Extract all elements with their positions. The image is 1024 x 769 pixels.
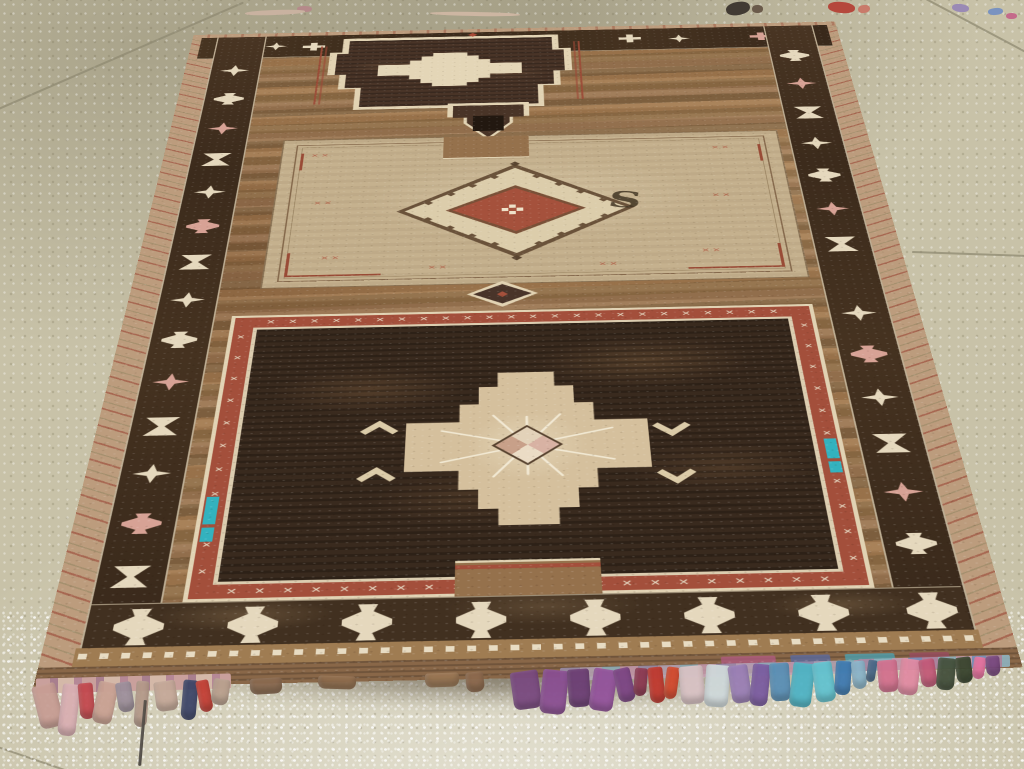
- border-motif-goblet: [807, 168, 842, 182]
- cross-glyph: ✕: [395, 583, 407, 593]
- cross-glyph: ✕: [266, 319, 276, 326]
- border-motif-goblet: [893, 533, 939, 555]
- border-motif-hourglass: [107, 566, 153, 589]
- fringe-tassel: [954, 656, 973, 684]
- border-motif-star: [130, 464, 173, 484]
- cross-glyph: ✕: [572, 312, 582, 319]
- cross-glyph: ✕: [804, 343, 814, 350]
- cross-glyph: ✕: [232, 355, 242, 362]
- border-motif-star: [815, 201, 851, 215]
- cross-glyph: ✕: [837, 502, 849, 510]
- cross-glyph: ✕: [214, 466, 225, 474]
- cross-glyph: ✕: [637, 311, 647, 318]
- border-motif-hourglass: [199, 153, 233, 166]
- fringe-tassel: [153, 680, 179, 713]
- cross-glyph: ✕: [799, 322, 809, 329]
- x-cluster: ✕✕: [320, 255, 342, 261]
- fringe-tassel: [425, 672, 459, 687]
- cross-glyph: ✕: [441, 315, 451, 322]
- border-motif-hourglass: [792, 106, 826, 118]
- border-motif-cross: [618, 34, 641, 42]
- x-cluster: ✕✕: [701, 247, 723, 253]
- cross-glyph: ✕: [832, 477, 843, 485]
- x-cluster: ✕✕: [711, 192, 732, 198]
- fringe-tassel: [318, 675, 356, 689]
- bottom-panel: ✕✕✕✕✕✕✕✕✕✕✕✕✕✕✕✕✕✕✕✕✕✕✕✕ ✕✕✕✕✕✕✕✕✕✕✕✕✕✕✕…: [182, 304, 874, 602]
- cross-glyph: ✕: [812, 385, 823, 392]
- border-motif-goblet: [160, 331, 199, 348]
- cross-glyph: ✕: [621, 579, 633, 588]
- pendant-diamond: [467, 280, 539, 307]
- cross-glyph: ✕: [734, 576, 746, 585]
- rug-rotation-wrapper: R: [0, 0, 1024, 769]
- rug-perspective-wrapper: R: [33, 22, 1023, 689]
- border-motif-star: [206, 122, 239, 135]
- border-motif-star: [799, 136, 833, 149]
- x-cluster: ✕✕: [311, 153, 331, 158]
- border-motif-goblet: [682, 597, 737, 634]
- border-motif-star: [264, 42, 288, 50]
- border-motif-star: [667, 34, 690, 42]
- fringe-tassel: [539, 669, 569, 715]
- center-pixel: [509, 211, 516, 214]
- border-motif-star: [785, 77, 818, 89]
- border-motif-goblet: [456, 601, 507, 638]
- border-motif-star: [219, 65, 251, 77]
- border-motif-star: [881, 481, 926, 502]
- cross-glyph: ✕: [678, 577, 690, 586]
- cross-glyph: ✕: [236, 334, 246, 341]
- border-motif-hourglass: [823, 236, 860, 251]
- cross-glyph: ✕: [288, 318, 298, 325]
- latchhook-diamond-medallion: [393, 162, 640, 260]
- cross-glyph: ✕: [353, 317, 363, 324]
- cross-glyph: ✕: [808, 364, 819, 371]
- border-motif-star: [168, 292, 206, 308]
- cross-glyph: ✕: [659, 310, 669, 317]
- fringe-tassel: [877, 659, 900, 693]
- floor-debris-item: [752, 5, 763, 13]
- cross-glyph: ✕: [217, 443, 228, 451]
- border-motif-goblet: [225, 606, 280, 643]
- center-pixel: [502, 208, 509, 211]
- cross-glyph: ✕: [282, 586, 294, 596]
- border-motif-goblet: [779, 50, 811, 61]
- cross-glyph: ✕: [706, 577, 718, 586]
- cross-glyph: ✕: [201, 541, 212, 549]
- cross-glyph: ✕: [594, 312, 604, 319]
- border-motif-goblet: [119, 513, 163, 534]
- border-motif-star: [150, 373, 190, 391]
- fringe-tassel: [465, 671, 485, 693]
- cross-glyph: ✕: [616, 311, 626, 318]
- fringe-tassel: [567, 668, 592, 707]
- fringe-tassel: [678, 665, 705, 705]
- x-cluster: ✕✕: [711, 145, 732, 150]
- cross-glyph: ✕: [817, 407, 828, 414]
- cross-glyph: ✕: [419, 315, 429, 322]
- border-motif-goblet: [213, 93, 245, 105]
- cross-glyph: ✕: [842, 528, 854, 536]
- x-cluster: ✕✕: [598, 261, 620, 267]
- border-motif-star: [192, 185, 227, 199]
- top-keyhole-medallion: [323, 34, 575, 110]
- cross-glyph: ✕: [848, 554, 860, 563]
- cross-glyph: ✕: [725, 309, 736, 316]
- fringe-tassel: [509, 669, 542, 711]
- cross-glyph: ✕: [746, 309, 757, 316]
- cross-glyph: ✕: [528, 313, 538, 320]
- woven-s-glyph: S: [606, 188, 644, 212]
- x-cluster: ✕✕: [427, 264, 449, 270]
- cross-glyph: ✕: [367, 584, 379, 594]
- cross-glyph: ✕: [253, 586, 265, 596]
- middle-panel: S ✕✕✕✕✕✕✕✕✕✕✕✕✕✕✕✕: [260, 130, 809, 289]
- cross-glyph: ✕: [550, 313, 560, 320]
- cross-glyph: ✕: [339, 584, 351, 594]
- cross-glyph: ✕: [221, 420, 232, 427]
- teal-accent: [199, 527, 214, 541]
- teal-accent: [828, 461, 843, 472]
- cross-glyph: ✕: [397, 316, 407, 323]
- bottom-panel-notch: [455, 558, 603, 597]
- cross-glyph: ✕: [331, 317, 341, 324]
- border-motif-goblet: [849, 345, 890, 362]
- border-motif-goblet: [110, 608, 167, 645]
- photo-scene: R: [0, 0, 1024, 769]
- cross-glyph: ✕: [463, 315, 473, 322]
- center-pixel: [517, 208, 524, 211]
- fringe-tassel: [851, 660, 868, 689]
- x-cluster: ✕✕: [313, 201, 334, 207]
- fringe-tassel: [834, 660, 852, 695]
- cross-glyph: ✕: [790, 575, 803, 584]
- border-motif-goblet: [903, 592, 962, 629]
- border-motif-star: [839, 305, 878, 322]
- cross-glyph: ✕: [225, 397, 235, 404]
- arrow-black-core: [473, 115, 504, 131]
- cross-glyph: ✕: [762, 576, 775, 585]
- panel-top-notch: [443, 135, 529, 159]
- cross-glyph: ✕: [819, 574, 832, 583]
- border-motif-goblet: [185, 219, 221, 234]
- fringe-tassel: [985, 655, 1001, 676]
- fringe-tassel: [936, 657, 957, 690]
- center-pixel: [509, 204, 516, 207]
- border-motif-goblet: [795, 594, 852, 631]
- cross-glyph: ✕: [649, 578, 661, 587]
- cross-glyph: ✕: [196, 568, 208, 577]
- cross-glyph: ✕: [375, 316, 385, 323]
- cross-glyph: ✕: [822, 430, 833, 437]
- cross-glyph: ✕: [703, 310, 713, 317]
- fringe-tassel: [704, 664, 731, 708]
- cross-glyph: ✕: [310, 585, 322, 595]
- rug: R: [33, 22, 1023, 689]
- notch-red-line: [455, 562, 601, 569]
- border-motif-goblet: [569, 599, 621, 636]
- cross-glyph: ✕: [229, 376, 239, 383]
- cross-glyph: ✕: [507, 314, 517, 321]
- border-motif-star: [859, 388, 901, 406]
- cross-glyph: ✕: [485, 314, 494, 321]
- border-motif-hourglass: [870, 433, 913, 452]
- floor-debris-item: [1006, 13, 1017, 19]
- cross-glyph: ✕: [309, 318, 319, 325]
- quartered-center-diamond: [492, 425, 564, 465]
- cross-glyph: ✕: [424, 583, 435, 593]
- cross-glyph: ✕: [681, 310, 691, 317]
- border-motif-goblet: [340, 604, 393, 641]
- cross-glyph: ✕: [768, 308, 779, 315]
- cross-glyph: ✕: [225, 587, 238, 597]
- border-motif-hourglass: [177, 254, 214, 269]
- border-motif-hourglass: [141, 417, 183, 436]
- fringe-tassel: [250, 677, 283, 695]
- fringe-tassel: [769, 662, 792, 701]
